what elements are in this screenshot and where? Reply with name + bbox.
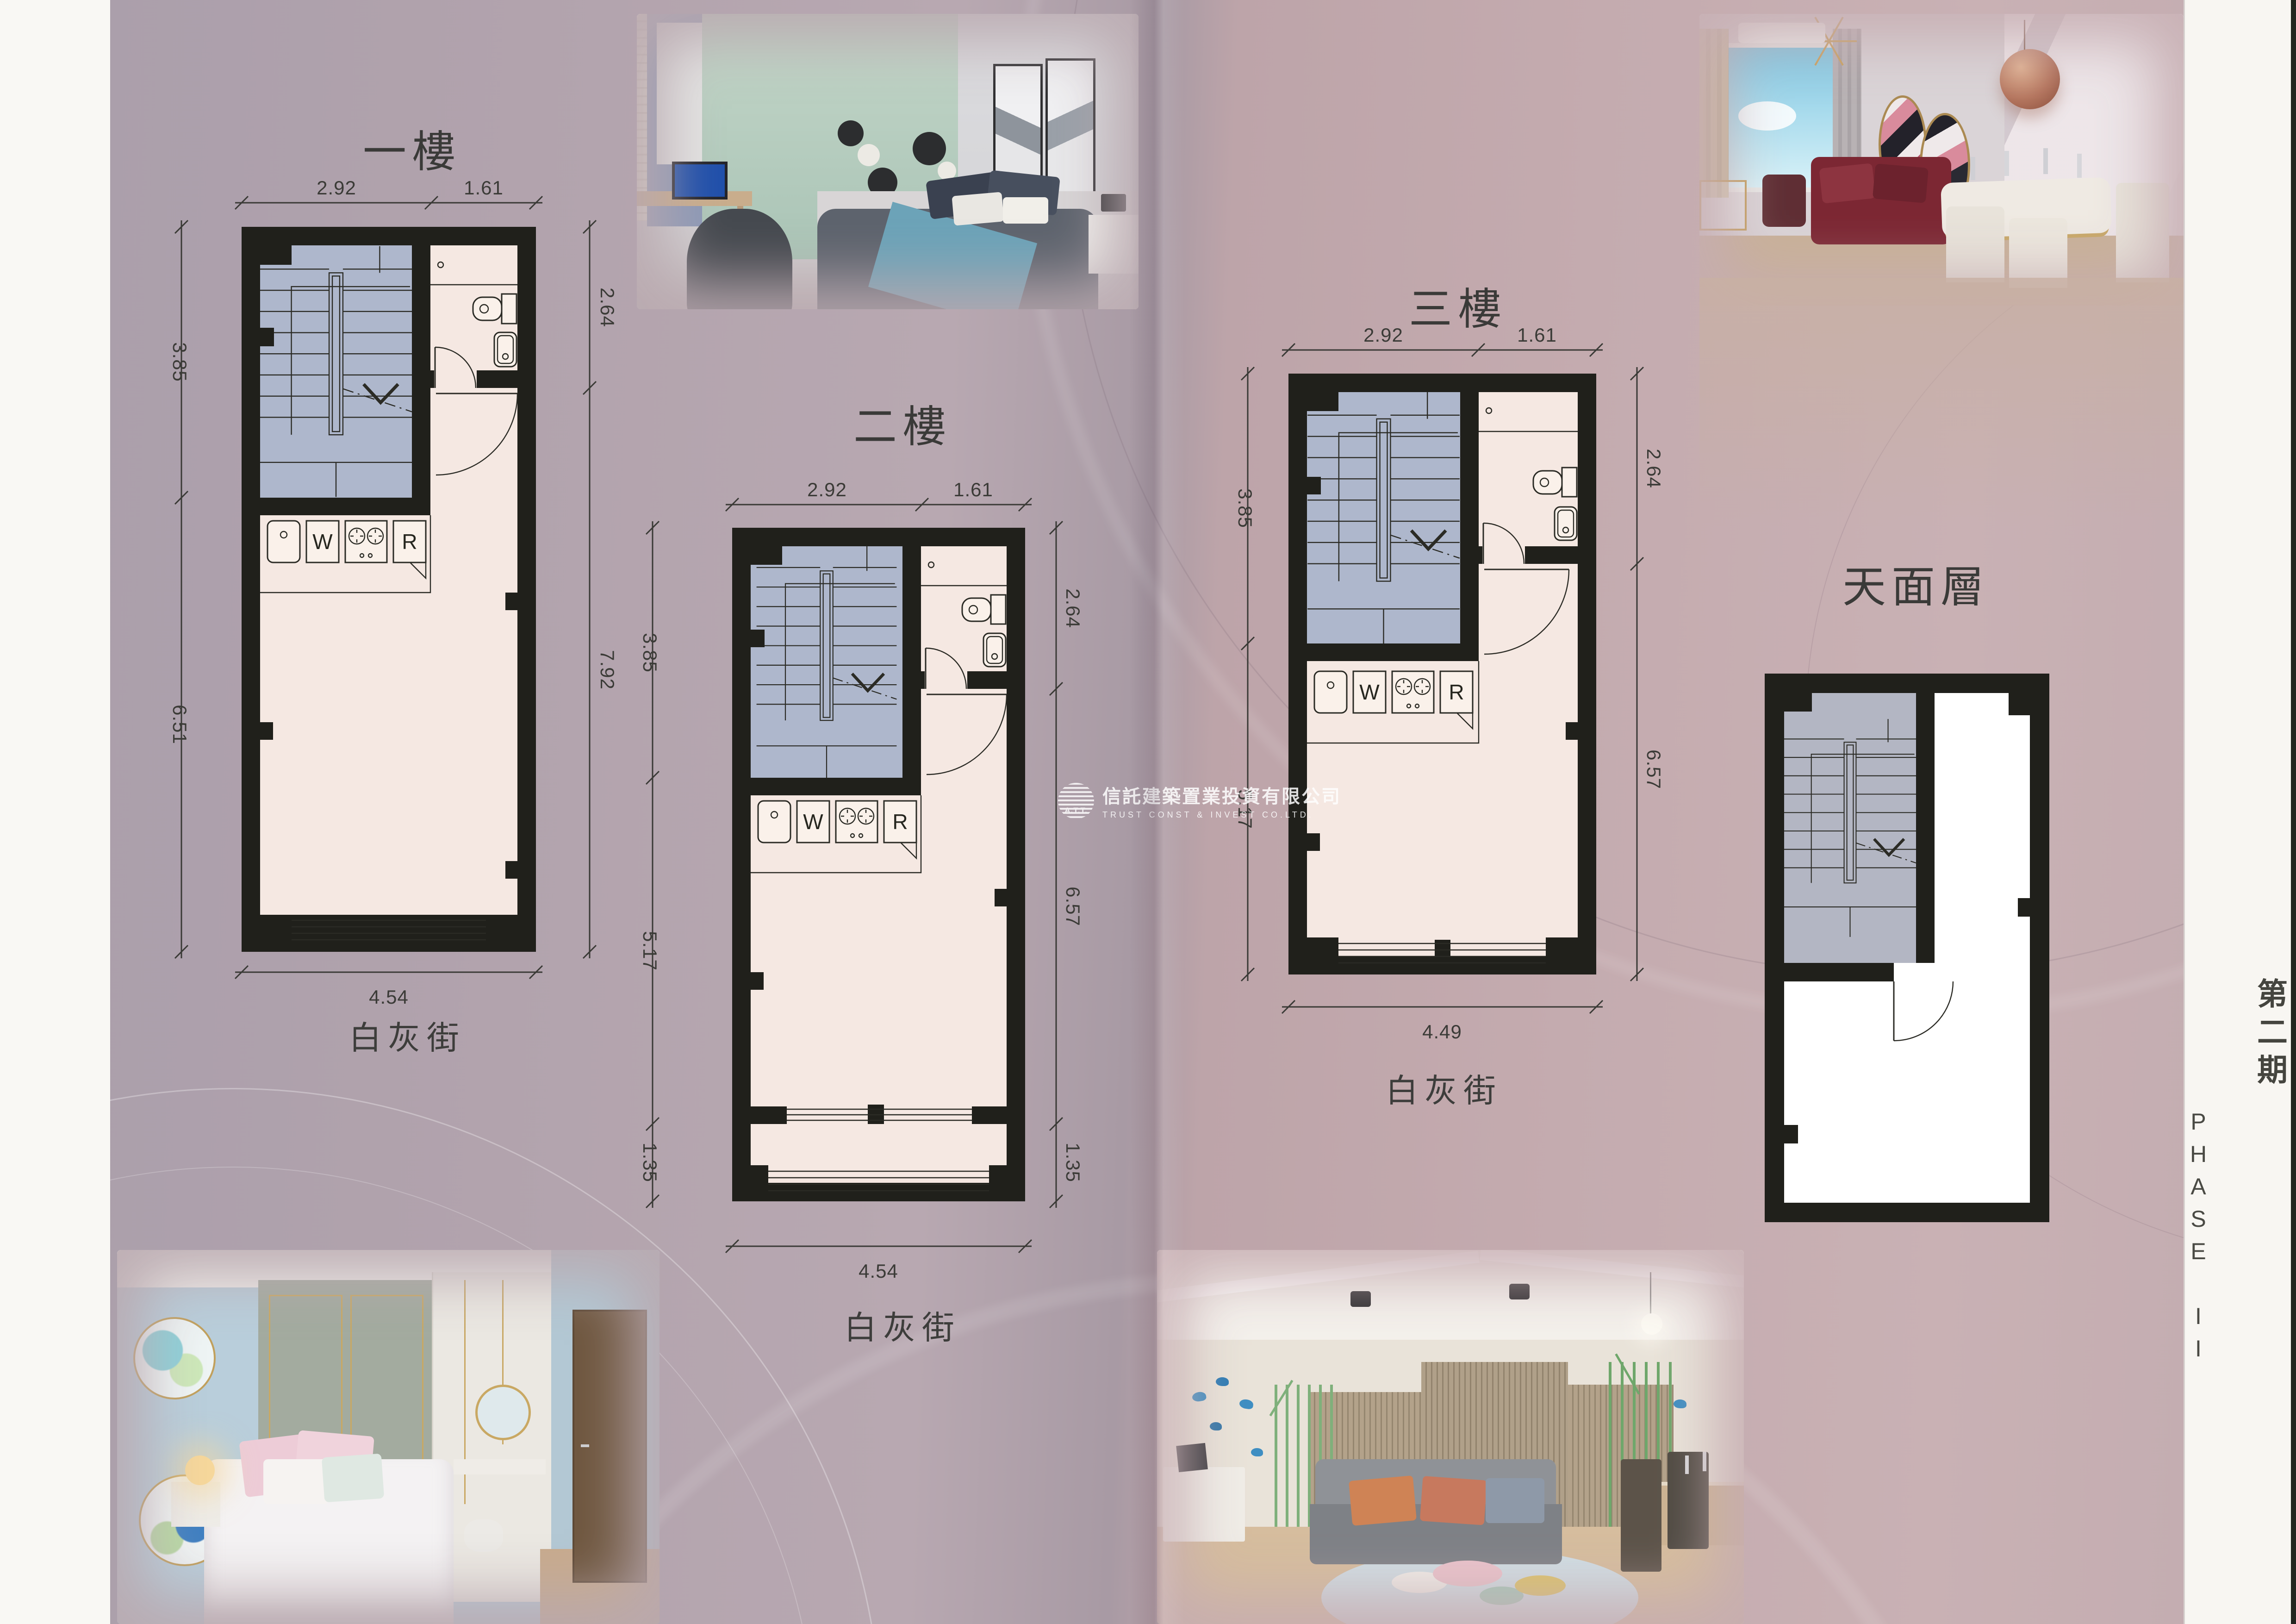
svg-text:3.85: 3.85 xyxy=(1234,488,1256,528)
dimension-left: 3.85 5.17 1.35 xyxy=(639,521,661,1208)
toilet-bowl xyxy=(1533,471,1562,494)
window-cloud xyxy=(1738,101,1797,131)
bookshelf-books xyxy=(704,67,720,108)
bed-mattress xyxy=(817,191,1139,309)
svg-text:R: R xyxy=(402,530,417,554)
street-label-third-floor: 白灰街 xyxy=(1356,1065,1532,1112)
dimension-bottom: 4.54 xyxy=(726,1240,1032,1282)
photo-bedroom-pink xyxy=(117,1250,660,1624)
bird-blue xyxy=(1251,1448,1263,1456)
vanity-table xyxy=(454,1459,546,1474)
floorplan-second-floor: 2.92 1.61 3.85 5.17 1.35 2.64 6.57 1.35 … xyxy=(616,472,1078,1435)
coffee-table-white xyxy=(1392,1572,1447,1593)
wall-circle-white xyxy=(938,162,956,180)
coffee-table-yellow xyxy=(1515,1575,1566,1596)
pouf-darkred xyxy=(1762,175,1806,227)
bird-blue xyxy=(1238,1399,1253,1410)
toilet-tank xyxy=(1562,468,1577,497)
svg-text:3.85: 3.85 xyxy=(169,342,191,382)
svg-text:1.61: 1.61 xyxy=(953,479,993,500)
laptop xyxy=(672,162,728,200)
oval-art xyxy=(1879,95,1927,194)
floorplan-roof xyxy=(1731,639,2083,1259)
window-blinds xyxy=(637,14,702,221)
svg-text:4.49: 4.49 xyxy=(1422,1021,1462,1043)
left-margin-strip xyxy=(0,0,110,1624)
svg-text:2.92: 2.92 xyxy=(807,479,847,500)
rug-round xyxy=(1321,1549,1638,1624)
wine-glass xyxy=(2043,148,2048,174)
green-branch-twig xyxy=(1615,1354,1640,1395)
slat-wall xyxy=(1421,1362,1568,1549)
sideboard xyxy=(1163,1467,1245,1542)
wall-circle-black xyxy=(913,132,946,165)
svg-text:R: R xyxy=(1449,680,1464,704)
svg-text:R: R xyxy=(892,810,908,834)
pillow-white xyxy=(952,192,1004,226)
bookshelf xyxy=(647,14,722,226)
curtain-right xyxy=(1833,29,1862,198)
oval-art xyxy=(1920,113,1970,217)
wall-circle-white xyxy=(858,144,880,166)
dimension-top: 2.92 1.61 xyxy=(726,479,1032,511)
sofa-pillow xyxy=(1349,1475,1417,1526)
curtain-left xyxy=(1699,29,1729,198)
dimension-left: 3.85 5.17 xyxy=(1234,367,1256,981)
window-bay xyxy=(242,915,536,952)
bird-blue xyxy=(1192,1391,1207,1403)
photo-living-red xyxy=(1699,14,2184,306)
svg-text:W: W xyxy=(312,530,333,554)
svg-text:W: W xyxy=(1359,680,1380,704)
panel-3d-wall xyxy=(2004,14,2184,306)
spotlight xyxy=(1509,1284,1530,1299)
window-sky xyxy=(1714,43,1844,192)
photo-bedroom-mint xyxy=(637,14,1139,309)
svg-text:2.64: 2.64 xyxy=(597,287,618,327)
svg-text:2.64: 2.64 xyxy=(1062,588,1084,628)
nightstand xyxy=(171,1482,220,1527)
ac-unit xyxy=(1738,23,1825,43)
svg-text:1.61: 1.61 xyxy=(1517,324,1557,346)
sofa-pillow xyxy=(1486,1478,1544,1523)
window-wall xyxy=(732,1105,1025,1126)
title-first-floor: 一樓 xyxy=(292,117,532,180)
street-label-first-floor: 白灰街 xyxy=(319,1012,495,1059)
tablet xyxy=(1176,1443,1208,1472)
floor-wood xyxy=(1157,1527,1744,1624)
street-label-second-floor: 白灰街 xyxy=(805,1302,1000,1349)
svg-text:1.61: 1.61 xyxy=(464,177,504,199)
bird-blue xyxy=(1674,1399,1686,1408)
chandelier-sputnik xyxy=(1814,17,1843,66)
pendant-lamp-copper xyxy=(2000,49,2060,109)
dimension-left: 3.85 6.51 xyxy=(169,220,191,958)
green-branch-twig xyxy=(1269,1380,1294,1416)
coffee-table-mint xyxy=(1480,1587,1524,1605)
phase-label-english: PHASE II xyxy=(2185,1109,2292,1368)
dimension-top: 2.92 1.61 xyxy=(1282,324,1603,356)
pillow-dark xyxy=(926,172,1001,219)
watermark-abbr: A.T.T. xyxy=(1058,806,1094,815)
dining-chair-dark xyxy=(1621,1459,1662,1571)
door-handle xyxy=(581,1444,589,1447)
svg-text:6.57: 6.57 xyxy=(1062,887,1084,926)
desk xyxy=(637,191,752,206)
wine-glass xyxy=(2004,151,2009,176)
office-chair xyxy=(687,209,792,309)
wine-glass xyxy=(1971,157,1975,180)
wardrobe xyxy=(432,1272,553,1601)
sofa-pillow xyxy=(1419,1476,1487,1525)
toilet-tank xyxy=(991,595,1006,624)
photo-fade xyxy=(1699,278,2184,528)
headboard-gold-frame xyxy=(350,1295,423,1485)
svg-text:7.92: 7.92 xyxy=(597,650,618,690)
bed-duvet xyxy=(817,209,1098,309)
dining-chair xyxy=(1946,206,2004,282)
ceiling xyxy=(117,1250,660,1287)
floorplan-first-floor: 2.92 1.61 3.85 6.51 2.64 7.92 4.54 xyxy=(153,176,616,1065)
pendant-ball-lamp xyxy=(1650,1272,1651,1317)
dimension-bottom: 4.49 xyxy=(1282,1000,1603,1043)
pillow-pink xyxy=(239,1432,321,1497)
title-second-floor: 二樓 xyxy=(782,392,1023,455)
pendant-ball-lamp xyxy=(1641,1313,1662,1335)
nightstand xyxy=(1089,215,1139,274)
svg-text:4.54: 4.54 xyxy=(859,1260,898,1282)
phase-label-chinese: 第二期 xyxy=(2185,978,2292,1092)
bookshelf-door xyxy=(657,23,707,164)
sofa-red-cushion xyxy=(1819,163,1875,203)
sofa-red xyxy=(1811,157,1951,244)
dimension-right: 2.64 7.92 xyxy=(583,220,618,958)
coffee-table-pink xyxy=(1433,1561,1502,1587)
round-art xyxy=(139,1474,230,1566)
toilet-bowl xyxy=(962,598,991,621)
watermark-logo: A.T.T. xyxy=(1058,783,1094,819)
ceiling-beam xyxy=(1157,1251,1479,1306)
wine-glass xyxy=(1685,1455,1689,1474)
dining-table xyxy=(1650,1482,1744,1545)
svg-text:W: W xyxy=(803,810,823,834)
window-bay xyxy=(1288,937,1596,974)
dimension-top: 2.92 1.61 xyxy=(235,177,542,209)
watermark-company-en: TRUST CONST & INVEST CO.LTD. xyxy=(1102,810,1341,820)
framed-print xyxy=(993,64,1043,240)
sofa-grey-seat xyxy=(1310,1504,1562,1564)
chandelier-sputnik xyxy=(1814,17,1843,66)
title-roof-level: 天面層 xyxy=(1796,552,2036,615)
bed-duvet xyxy=(204,1459,454,1624)
mint-feature-wall xyxy=(702,14,958,259)
dining-chair-dark xyxy=(1668,1452,1709,1549)
side-table-gold xyxy=(1699,180,1747,231)
headboard-wall xyxy=(258,1280,432,1549)
dimension-right: 2.64 6.57 xyxy=(1630,367,1665,981)
stairwell xyxy=(1307,392,1460,643)
flip-clock xyxy=(1101,194,1126,212)
wardrobe-gold-line xyxy=(464,1280,466,1505)
dining-table xyxy=(1941,177,2112,238)
sofa-red-cushion xyxy=(1872,163,1928,203)
pillow-white xyxy=(1003,197,1048,224)
watermark-company-cn: 信託建築置業投資有限公司 xyxy=(1102,781,1341,808)
floor-wood xyxy=(540,1549,660,1624)
slat-wall xyxy=(1568,1385,1674,1549)
ceiling-beam xyxy=(1480,1250,1744,1294)
floorplan-third-floor: 2.92 1.61 3.85 5.17 2.64 6.57 4.49 xyxy=(1203,324,1666,1167)
bedside-lamp-glow xyxy=(185,1455,215,1485)
watermark: A.T.T. 信託建築置業投資有限公司 TRUST CONST & INVEST… xyxy=(1058,781,1341,820)
bird-blue xyxy=(1216,1377,1229,1386)
round-art xyxy=(133,1317,216,1399)
pendant-lamp-copper xyxy=(2024,20,2025,55)
dimension-bottom: 4.54 xyxy=(235,966,542,1008)
svg-text:2.92: 2.92 xyxy=(1363,324,1403,346)
stove xyxy=(345,521,387,562)
svg-text:4.54: 4.54 xyxy=(369,986,409,1008)
spotlight xyxy=(1350,1291,1371,1307)
svg-text:6.51: 6.51 xyxy=(169,705,191,744)
phase-side-strip: 第二期 PHASE II xyxy=(2184,0,2292,1624)
toilet-tank xyxy=(502,294,516,324)
svg-text:6.57: 6.57 xyxy=(1643,750,1665,789)
green-branches xyxy=(1609,1362,1679,1549)
stove xyxy=(836,801,877,843)
sofa-grey-back xyxy=(1315,1459,1556,1515)
svg-text:3.85: 3.85 xyxy=(639,633,661,673)
green-branches xyxy=(1275,1385,1333,1549)
stairwell xyxy=(751,546,902,778)
headboard-gold-frame xyxy=(269,1295,342,1485)
brochure-scan: 一樓 2.92 1 xyxy=(0,0,2296,1624)
wardrobe-gold-line xyxy=(502,1280,504,1445)
svg-text:2.64: 2.64 xyxy=(1643,449,1665,488)
stove xyxy=(1392,671,1434,713)
vanity-stool xyxy=(464,1519,503,1552)
scan-edge xyxy=(2291,0,2296,1624)
desk-leg xyxy=(737,206,743,294)
svg-text:1.35: 1.35 xyxy=(639,1143,661,1182)
svg-text:1.35: 1.35 xyxy=(1062,1143,1084,1182)
photo-living-mint xyxy=(1157,1250,1744,1624)
svg-text:5.17: 5.17 xyxy=(639,931,661,971)
pillow-white xyxy=(263,1459,329,1504)
bed-throw-blue xyxy=(868,201,1037,309)
pillow-mint xyxy=(322,1454,384,1503)
toilet-bowl xyxy=(473,297,502,320)
wine-glass xyxy=(1703,1452,1706,1471)
dining-chair xyxy=(2116,183,2169,282)
kitchen-sink xyxy=(268,521,300,562)
wall-circle-black xyxy=(868,168,897,197)
stairwell xyxy=(260,245,412,498)
slat-wall xyxy=(1310,1392,1421,1549)
kitchen-sink xyxy=(1314,671,1347,713)
svg-text:2.92: 2.92 xyxy=(317,177,356,199)
wine-glass xyxy=(2077,154,2082,178)
wall-circle-black xyxy=(838,120,864,146)
framed-print xyxy=(1045,58,1095,246)
bird-blue xyxy=(1210,1422,1222,1430)
chandelier-sputnik xyxy=(1801,40,1857,42)
vanity-mirror xyxy=(475,1385,531,1440)
kitchen-sink xyxy=(758,801,790,843)
pillow-dark xyxy=(986,170,1060,215)
ceiling xyxy=(1157,1250,1744,1340)
pillow-pink xyxy=(294,1430,374,1493)
